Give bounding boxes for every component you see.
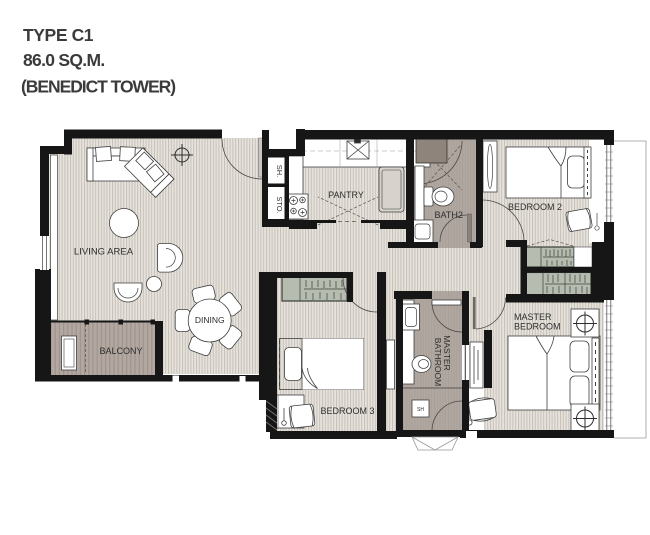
svg-text:DINING: DINING	[195, 315, 225, 325]
svg-text:PANTRY: PANTRY	[328, 190, 364, 200]
svg-text:BALCONY: BALCONY	[99, 346, 142, 356]
svg-text:STO.: STO.	[275, 196, 284, 213]
svg-text:BEDROOM: BEDROOM	[514, 322, 561, 332]
svg-text:86.0 SQ.M.: 86.0 SQ.M.	[23, 50, 105, 70]
svg-text:SH: SH	[417, 407, 424, 413]
svg-text:TYPE C1: TYPE C1	[23, 25, 94, 45]
svg-text:BEDROOM 3: BEDROOM 3	[320, 406, 374, 416]
svg-text:SH.: SH.	[275, 165, 284, 178]
svg-text:BEDROOM 2: BEDROOM 2	[508, 202, 562, 212]
svg-text:LIVING AREA: LIVING AREA	[74, 247, 134, 258]
svg-text:BATHROOM: BATHROOM	[433, 338, 443, 386]
svg-text:BATH2: BATH2	[435, 210, 463, 220]
svg-text:(BENEDICT TOWER): (BENEDICT TOWER)	[21, 77, 175, 97]
svg-text:MASTER: MASTER	[514, 312, 552, 322]
